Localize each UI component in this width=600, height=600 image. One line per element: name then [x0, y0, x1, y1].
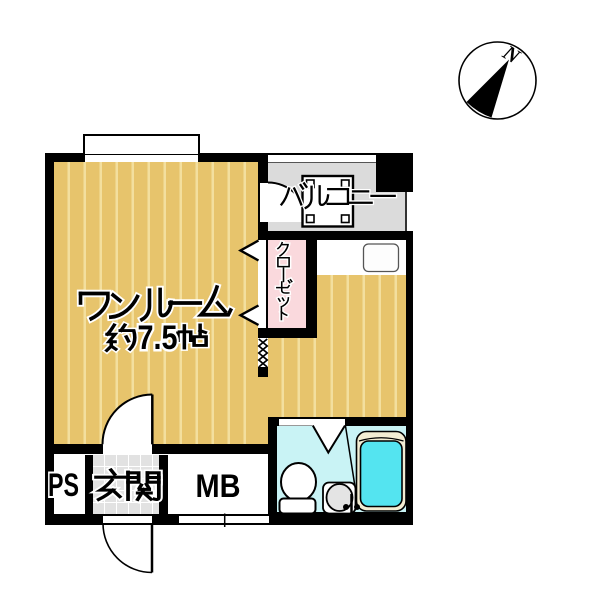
svg-text:7.5: 7.5: [138, 319, 178, 357]
svg-text:PS: PS: [48, 467, 79, 503]
svg-text:MB: MB: [196, 468, 241, 504]
